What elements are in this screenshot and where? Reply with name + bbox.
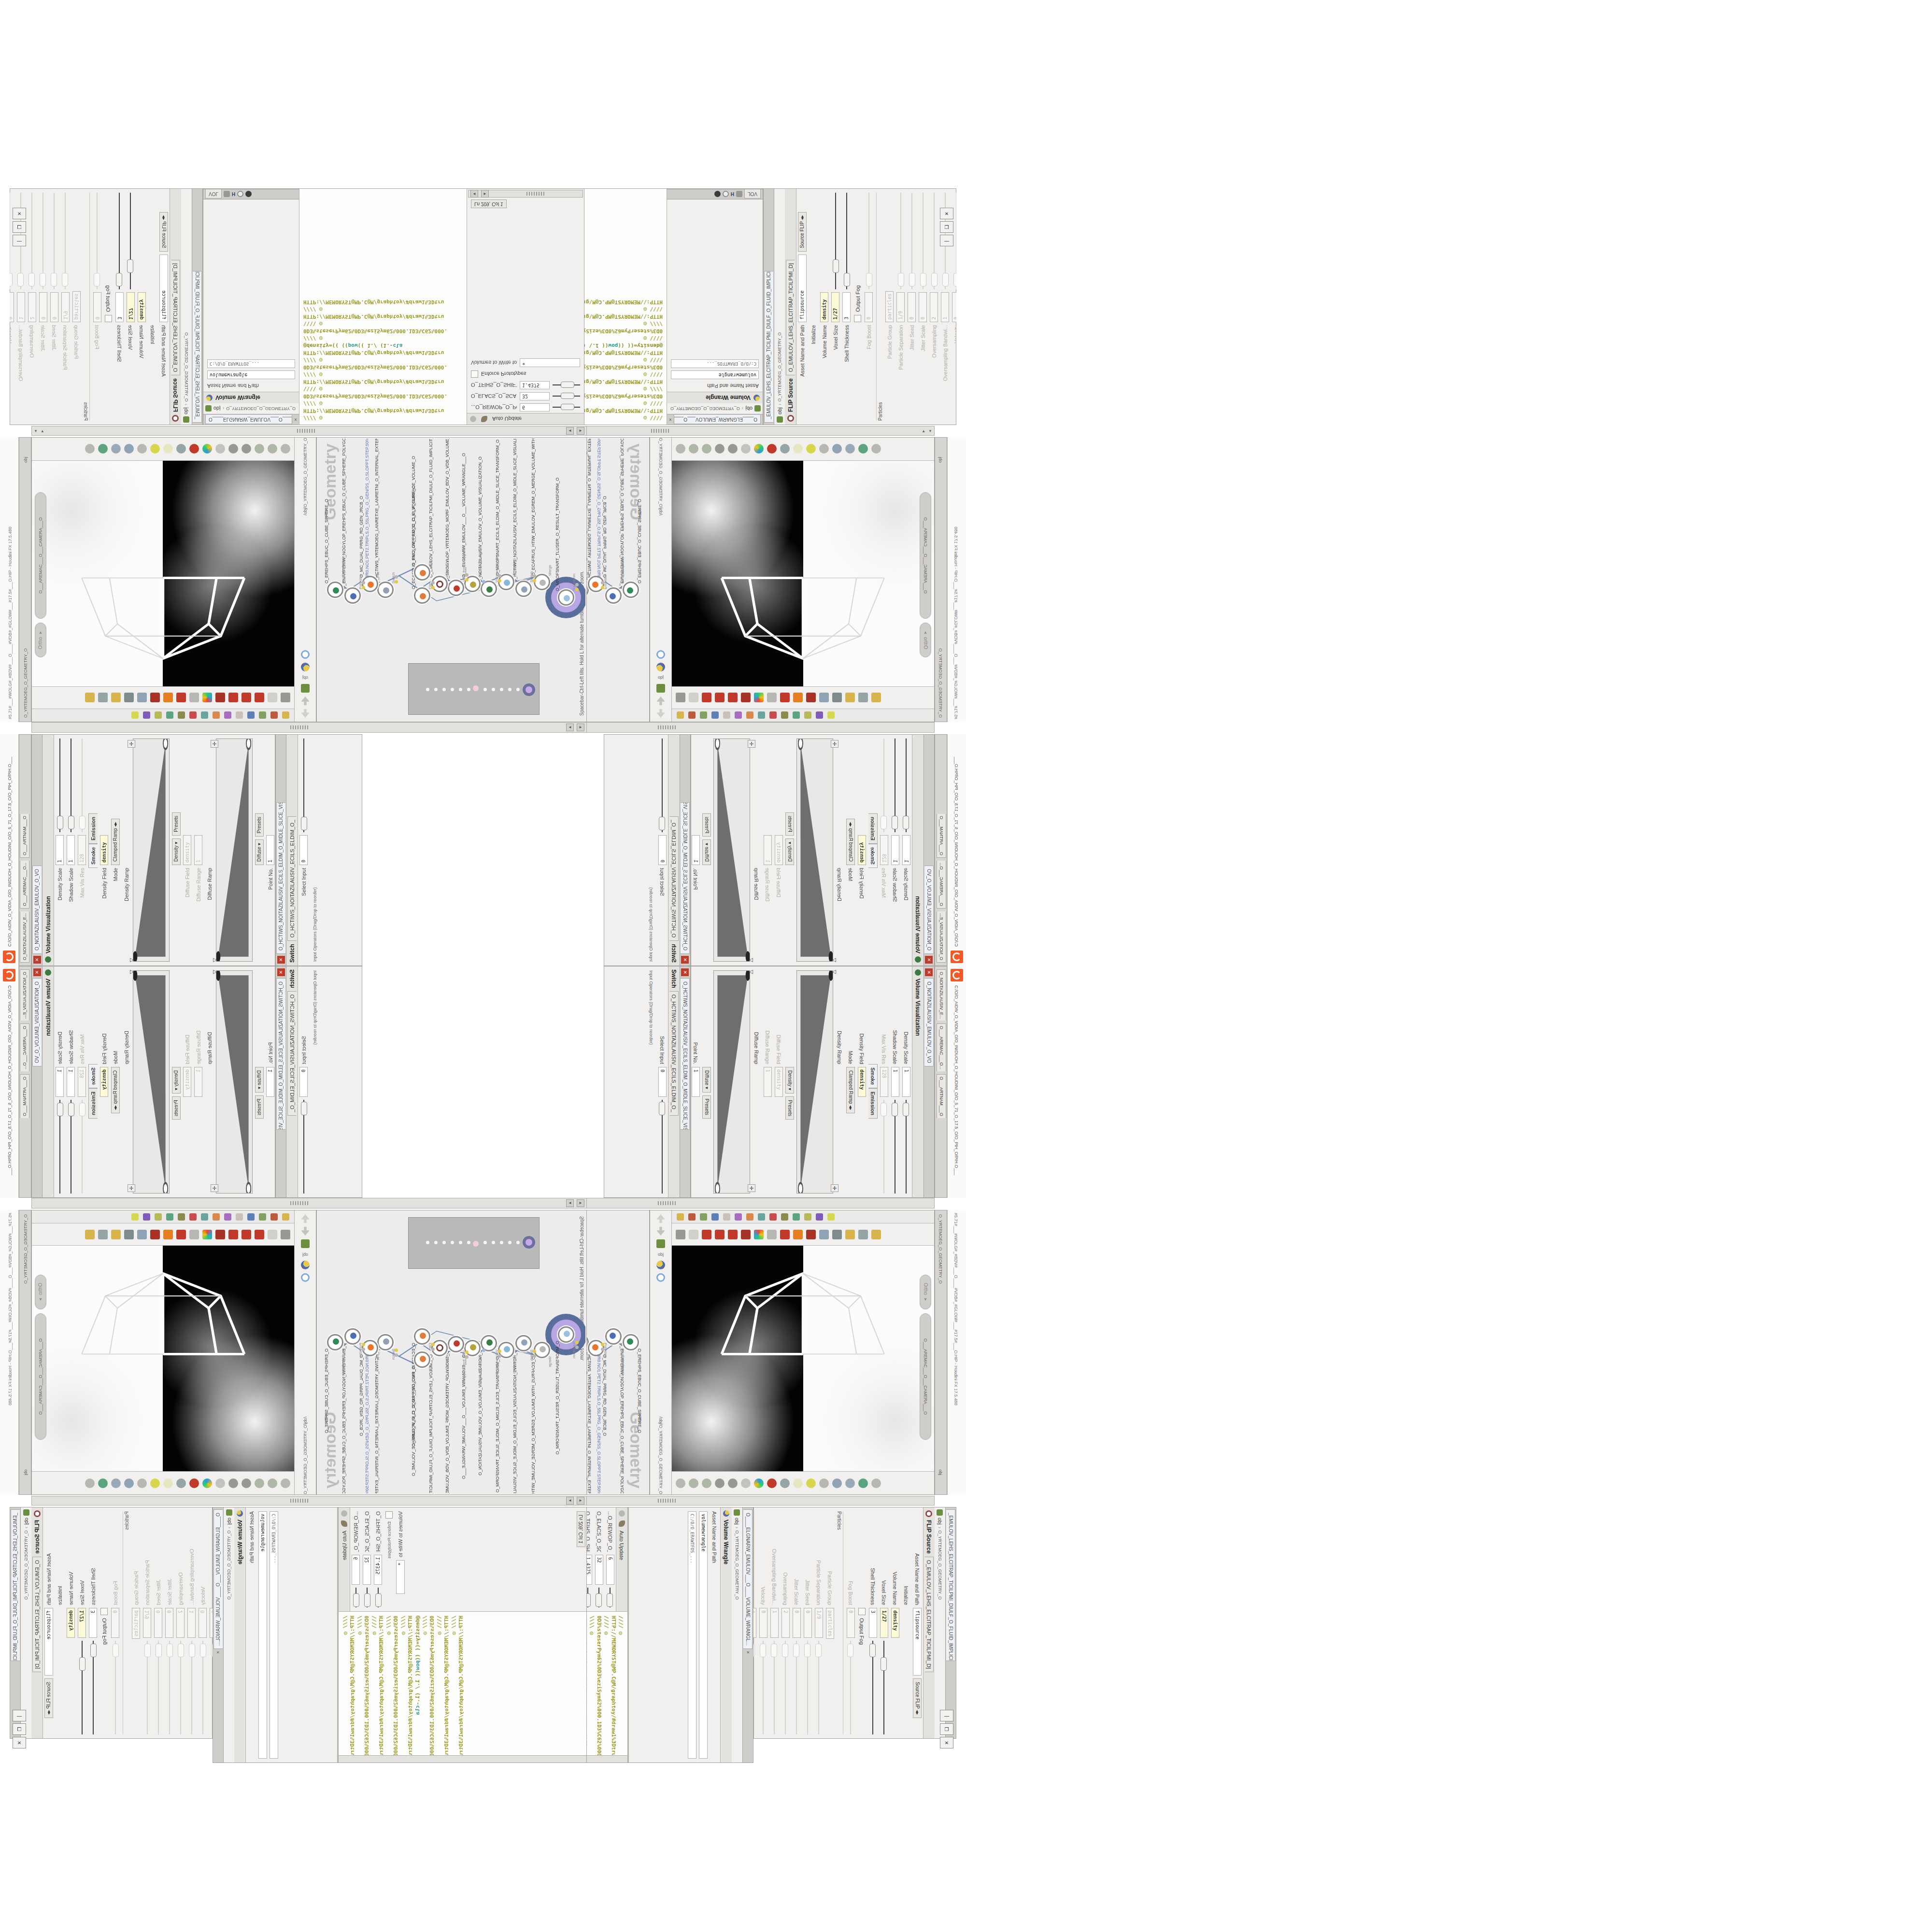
wrangle-slider[interactable]: [363, 1588, 370, 1607]
tab-close-icon[interactable]: ×: [294, 417, 297, 422]
diffuse-range-value[interactable]: 1: [194, 1067, 202, 1097]
diffuse-field-value[interactable]: density: [183, 1067, 191, 1097]
ortho-pill[interactable]: Ortho ▾: [35, 1275, 46, 1309]
maximize-button[interactable]: ❐: [13, 221, 26, 233]
presets-kind-dropdown[interactable]: Diffuse ▾: [255, 839, 264, 865]
presets-button[interactable]: Presets: [255, 1095, 264, 1119]
arrow-left-icon[interactable]: [281, 444, 290, 454]
ramp-add-icon[interactable]: ✛: [128, 1184, 135, 1192]
gear-red-icon[interactable]: [150, 693, 160, 703]
wrangle-slider-value[interactable]: 1.4375: [374, 1555, 382, 1585]
select-input-slider[interactable]: [300, 1100, 307, 1193]
shelf-tool-icon[interactable]: [189, 1213, 197, 1221]
param-value[interactable]: 1/27: [127, 292, 135, 322]
param-slider[interactable]: [112, 1641, 119, 1734]
lamp-yellow-icon[interactable]: [85, 693, 95, 703]
wrangle-slider-value[interactable]: 1.4375: [520, 381, 550, 389]
bucket-yellow-icon[interactable]: [111, 693, 121, 703]
param-slider[interactable]: [210, 1641, 213, 1734]
pane-close-icon[interactable]: ✕: [277, 956, 285, 964]
center-pane-tabs[interactable]: O_NOITAZILAUSIV_E...O___AREMAC___O...O__…: [19, 966, 31, 1198]
ramp-widget[interactable]: ▽✛: [133, 739, 170, 962]
select-input-value[interactable]: 0: [299, 835, 308, 865]
density-field-value[interactable]: density: [100, 835, 108, 865]
param-value[interactable]: 0: [39, 292, 47, 322]
slate-icon[interactable]: [205, 406, 212, 412]
prism-icon[interactable]: [268, 1478, 277, 1488]
scrollbar[interactable]: [526, 192, 546, 196]
close-button[interactable]: ✕: [13, 1737, 26, 1748]
param-value[interactable]: 0: [154, 1608, 162, 1638]
shelf-tool-icon[interactable]: [259, 712, 266, 719]
scissors-icon[interactable]: [189, 1230, 199, 1239]
param-value[interactable]: 2: [176, 1608, 185, 1638]
flip-asset-field[interactable]: flipsource: [160, 255, 169, 322]
refresh-icon[interactable]: [470, 416, 476, 422]
key-icon[interactable]: [241, 444, 251, 454]
scroll-left-icon[interactable]: ◄: [470, 190, 478, 198]
shelf-tool-icon[interactable]: [178, 1213, 185, 1221]
network-node[interactable]: TransformO_MROFSNART_TLUSER_O_RESULT_TRA…: [558, 589, 574, 606]
capsule-yellow-icon[interactable]: [150, 444, 160, 454]
enforce-prototypes-checkbox[interactable]: [471, 370, 478, 378]
breadcrumb-node[interactable]: O_YRTEMOEG_O_GEOMETRY_O: [24, 1530, 28, 1600]
shelf-tool-icon[interactable]: [213, 712, 220, 719]
param-slider[interactable]: [78, 739, 85, 832]
blue-rings-icon[interactable]: [301, 1273, 310, 1282]
presets-kind-dropdown[interactable]: Density ▾: [172, 838, 181, 865]
shelf-tool-icon[interactable]: [236, 1213, 243, 1221]
cam-red-icon[interactable]: [189, 444, 199, 454]
auto-update-button[interactable]: Auto Update: [341, 1531, 347, 1560]
diffuse-field-value[interactable]: density: [183, 835, 191, 865]
software-path-field[interactable]: C:/O/O_ERAWTFOS_...: [270, 1511, 278, 1759]
tab-flip-long[interactable]: _EMULOV_LEHS_ELCITRAP_TICILPMI_DIULF_O_F…: [193, 271, 202, 423]
shelf-tool-icon[interactable]: [143, 712, 150, 719]
refresh-icon[interactable]: [341, 1510, 347, 1517]
shelf-tools-row[interactable]: [32, 1210, 294, 1223]
wrangle-slider[interactable]: [553, 404, 580, 411]
bucket-yellow-icon[interactable]: [111, 1230, 121, 1239]
param-slider[interactable]: [67, 1100, 74, 1193]
center-pane-tabs[interactable]: O_NOITAZILAUSIV_E...O___AREMAC___O...O__…: [19, 734, 31, 966]
wrangle-slider[interactable]: [374, 1588, 382, 1607]
network-node[interactable]: MergeO_ECAFRUS_HTIW_EMULOV_EGREM_O_MERGE…: [534, 574, 550, 590]
shelf-tool-icon[interactable]: [166, 1213, 173, 1221]
camera-pill[interactable]: O___AREMAC___O___CAMERA___O: [35, 1313, 46, 1440]
viewport-canvas[interactable]: Ortho ▾ O___AREMAC___O___CAMERA___O: [32, 461, 294, 686]
network-node[interactable]: an_CubeSphereO_EREHPS_EBUC_O_CUBE_SPHERE…: [327, 582, 343, 598]
tab-viz[interactable]: O_NOITAZILAUSIV_EMULOV_O_VO: [32, 866, 42, 954]
shelf-tool-icon[interactable]: [131, 1213, 139, 1221]
param-value[interactable]: 0: [111, 1608, 119, 1638]
network-editor-pane[interactable]: Spacebar-Ctrl-Left tilts. Hold L for alt…: [316, 437, 587, 722]
center-tab[interactable]: O___ARTNAM___O: [20, 1074, 29, 1118]
close-button[interactable]: ✕: [13, 208, 26, 219]
render-box-icon[interactable]: [111, 444, 121, 454]
cursor-arrow-icon[interactable]: [124, 1230, 134, 1239]
prism-icon[interactable]: [255, 1478, 264, 1488]
network-node[interactable]: SwitchO_HCTIWS_NOITAZILAUSIV_ECILS_ELDIM…: [515, 581, 532, 597]
shelf-tool-icon[interactable]: [201, 712, 208, 719]
prism-icon[interactable]: [268, 444, 277, 454]
minimize-button[interactable]: —: [13, 235, 26, 246]
center-pane-tabs[interactable]: O_YRTEMOEG_O_GEOMETRY_O obj: [19, 437, 31, 722]
param-value[interactable]: 0: [210, 1608, 213, 1638]
plane-red-icon[interactable]: [176, 1230, 186, 1239]
presets-button[interactable]: Presets: [172, 812, 181, 836]
param-slider[interactable]: [143, 1641, 151, 1734]
shelf-tool-icon[interactable]: [155, 712, 162, 719]
node-link-label[interactable]: JR0.NO1.PET2.TRIPLS.O_55LPRG_O_GEN/SS_O.…: [365, 1354, 369, 1493]
source-flip-dropdown[interactable]: Source FLIP ◂▸: [44, 1678, 53, 1718]
scene-viewport-pane[interactable]: obj /obj/O_YRTEMOEG_O_GEOMETRY_O: [31, 437, 316, 722]
pane-close-icon[interactable]: ✕: [33, 956, 41, 964]
auto-update-button[interactable]: Auto Update: [492, 416, 522, 422]
minimize-button[interactable]: —: [13, 1710, 26, 1721]
pen-icon[interactable]: [481, 416, 487, 422]
mode-dropdown[interactable]: Clamped Ramp ◂▸: [111, 819, 120, 865]
cam-box-icon[interactable]: [176, 444, 186, 454]
shelf-tool-icon[interactable]: [270, 1213, 278, 1221]
magnet-red-icon[interactable]: [255, 1230, 264, 1239]
param-value[interactable]: 2: [28, 292, 36, 322]
node-link-label[interactable]: JR0.NO1.PET2.TRIPLS.O_55LPRG_O_GEN/SS_O.…: [365, 439, 369, 578]
info-icon[interactable]: [245, 191, 252, 198]
viewport-top-toolbar[interactable]: [32, 1223, 294, 1246]
slate-icon[interactable]: [226, 1509, 232, 1516]
cursor-arrow-icon[interactable]: [124, 693, 134, 703]
diamond-checker-icon[interactable]: [98, 1230, 108, 1239]
param-slider[interactable]: [40, 193, 47, 289]
vex-code-editor[interactable]: //// ◎ HTTP://MEMORYST@MP.C@M/graphtoy/#…: [299, 189, 467, 425]
param-value[interactable]: 1: [56, 1067, 64, 1097]
shelf-tool-icon[interactable]: [236, 712, 243, 719]
pane-divider-strip[interactable]: ◄►: [31, 722, 587, 733]
target-icon[interactable]: [163, 444, 173, 454]
diffuse-range-value[interactable]: 1: [194, 835, 202, 865]
diamond-gray-icon[interactable]: [85, 1478, 95, 1488]
param-value[interactable]: 3: [115, 292, 124, 322]
tab-volume-wrangle[interactable]: O____ELGNARW_EMULOV___O____VOLUME_WRANGL…: [205, 415, 292, 424]
star-colors-icon[interactable]: [202, 693, 212, 703]
param-slider[interactable]: [28, 193, 36, 289]
param-slider[interactable]: [155, 1641, 162, 1734]
lens-icon[interactable]: [137, 444, 147, 454]
shelf-tool-icon[interactable]: [178, 712, 185, 719]
film-loop-icon[interactable]: [281, 693, 290, 703]
network-node[interactable]: TransformO_MROFSNART_TLUSER_O_RESULT_TRA…: [558, 1326, 574, 1343]
ramp-widget[interactable]: ▽✛: [216, 970, 253, 1193]
view-box-icon[interactable]: [268, 693, 277, 703]
network-editor-pane[interactable]: Spacebar-Ctrl-Left tilts. Hold L for alt…: [316, 1210, 587, 1495]
shelf-tool-icon[interactable]: [201, 1213, 208, 1221]
magnet-red-icon[interactable]: [228, 1230, 238, 1239]
shelf-tool-icon[interactable]: [143, 1213, 150, 1221]
network-node[interactable]: PolyWireO_ENARFERIW_NOGYLOP_EREHPS_EBUC_…: [344, 587, 361, 604]
pen-icon[interactable]: [341, 1520, 347, 1527]
lamp-yellow-icon[interactable]: [85, 1230, 95, 1239]
param-value[interactable]: 1: [187, 1608, 196, 1638]
scrollbar[interactable]: [339, 1755, 586, 1762]
network-node[interactable]: ClipO_EMULOV_PILC_O_CLIP_VOLUME_O: [414, 564, 430, 581]
magnet-red-icon[interactable]: [241, 693, 251, 703]
cam-red-icon[interactable]: [189, 1478, 199, 1488]
gear-icon[interactable]: [224, 191, 230, 198]
param-value[interactable]: particles: [132, 1608, 140, 1639]
param-value[interactable]: 1: [67, 835, 75, 865]
ortho-pill[interactable]: Ortho ▾: [35, 623, 46, 657]
network-node[interactable]: SwitchO_HCTIWS_YRTEMOEG_LANRETXE_LANRETN…: [377, 1334, 394, 1350]
camera-pill[interactable]: O___AREMAC___O___CAMERA___O: [35, 492, 46, 619]
shelf-tool-icon[interactable]: [224, 1213, 231, 1221]
network-node[interactable]: ClipO_ECAFRUS_PILC_GRP_PMOC_O_CLIP_SURFA…: [414, 587, 430, 604]
home-up-icon[interactable]: [301, 709, 310, 718]
build-green-icon[interactable]: [98, 1478, 108, 1488]
shelf-tools-row[interactable]: [32, 709, 294, 722]
network-node[interactable]: MergeO_ECAFRUS_HTIW_EMULOV_EGREM_O_MERGE…: [534, 1342, 550, 1358]
arrow-left-icon[interactable]: [281, 1478, 290, 1488]
wrangle-name-field[interactable]: volumewrangle: [258, 1511, 267, 1759]
switch-node-tab[interactable]: O_HCTIWS_NOITAZILAUSIV_ECILS_ELDIM_O_: [287, 816, 297, 941]
wrangle-slider-value[interactable]: 6: [352, 1555, 360, 1585]
param-slider[interactable]: [116, 193, 123, 289]
param-value[interactable]: 1: [266, 835, 274, 865]
network-node[interactable]: VDB from PolygonsO_SNOGYLOP_YRTEMOEG_MOR…: [448, 1336, 464, 1352]
network-node[interactable]: SwitchO_HCTIWS_NOITAZILAUSIV_ECILS_ELDIM…: [515, 1335, 532, 1351]
enforce-prototypes-checkbox[interactable]: [385, 1511, 393, 1519]
ramp-widget[interactable]: ▽✛: [133, 970, 170, 1193]
param-slider[interactable]: [78, 1641, 85, 1734]
slate-icon[interactable]: [301, 1239, 310, 1248]
network-node[interactable]: VDB from PolygonsO_SNOGYLOP_YRTEMOEG_MOR…: [448, 580, 464, 596]
cam-box-icon[interactable]: [176, 1478, 186, 1488]
param-slider[interactable]: [166, 1641, 173, 1734]
obj-breadcrumb[interactable]: obj: [302, 1252, 308, 1257]
arrow-down-icon[interactable]: [301, 696, 310, 705]
param-value[interactable]: 0: [165, 1608, 173, 1638]
shelf-tool-icon[interactable]: [189, 712, 197, 719]
wrangle-slider-value[interactable]: 32: [520, 392, 550, 400]
ramp-add-icon[interactable]: ✛: [128, 740, 135, 748]
prism-icon[interactable]: [255, 444, 264, 454]
shelf-tool-icon[interactable]: [155, 1213, 162, 1221]
slate-icon[interactable]: [23, 1509, 29, 1516]
pane-divider-strip[interactable]: ◄►: [31, 1496, 587, 1506]
key-icon[interactable]: [241, 1478, 251, 1488]
mode-dropdown[interactable]: Clamped Ramp ◂▸: [111, 1067, 120, 1113]
ramp-add-icon[interactable]: ✛: [211, 740, 218, 748]
software-path-field[interactable]: C:/O/O_ERAWTFOS_...: [207, 360, 295, 369]
wrangle-slider[interactable]: [553, 382, 580, 389]
wrangle-slider[interactable]: [352, 1588, 359, 1607]
param-value[interactable]: 128: [78, 1067, 86, 1097]
breadcrumb-node[interactable]: O_YRTEMOEG_O_GEOMETRY_O: [227, 1530, 231, 1600]
param-slider[interactable]: [199, 1641, 206, 1734]
param-slider[interactable]: [188, 1641, 195, 1734]
render-box-icon[interactable]: [111, 1478, 121, 1488]
param-value[interactable]: 128: [78, 835, 86, 865]
param-value[interactable]: density: [67, 1608, 75, 1638]
pane-divider-strip[interactable]: ◄►: [31, 1198, 587, 1208]
tab-smoke[interactable]: Smoke: [88, 1064, 98, 1088]
center-tab[interactable]: O___AREMAC___O...: [20, 1023, 29, 1071]
param-slider[interactable]: [177, 1641, 184, 1734]
param-value[interactable]: 1: [266, 1067, 274, 1097]
ramp-widget[interactable]: ▽✛: [216, 739, 253, 962]
param-value[interactable]: density: [138, 292, 146, 322]
network-node[interactable]: ClipO_ECAFRUS_PILC_GRP_PMOC_O_CLIP_SURFA…: [414, 1328, 430, 1345]
arrow-down-icon[interactable]: [301, 1227, 310, 1236]
scene-viewport-pane[interactable]: obj /obj/O_YRTEMOEG_O_GEOMETRY_O: [31, 1210, 316, 1495]
shelf-tool-icon[interactable]: [282, 1213, 289, 1221]
network-node[interactable]: SwitchO_HCTIWS_YRTEMOEG_LANRETXE_LANRETN…: [377, 582, 394, 598]
param-slider[interactable]: [89, 1641, 97, 1734]
ramp-add-icon[interactable]: ✛: [211, 1184, 218, 1192]
breadcrumb-node[interactable]: O_YRTEMOEG_O_GEOMETRY_O: [226, 406, 296, 411]
toggle-2d-icon[interactable]: [137, 693, 147, 703]
breadcrumb[interactable]: obj: [213, 406, 221, 412]
vex-code-editor[interactable]: //// ◎ HTTP://MEMORYST@MP.C@M/graphtoy/#…: [339, 1612, 586, 1755]
tab-vol[interactable]: VOL: [205, 190, 222, 199]
param-slider[interactable]: [56, 1100, 63, 1193]
swirl-orange-icon[interactable]: [163, 693, 173, 703]
select-input-value[interactable]: 0: [299, 1067, 308, 1097]
gear-red-icon[interactable]: [150, 1230, 160, 1239]
pane-close-icon[interactable]: ✕: [33, 968, 41, 976]
source-flip-dropdown[interactable]: Source FLIP ◂▸: [160, 212, 169, 252]
shelf-tool-icon[interactable]: [166, 712, 173, 719]
tab-volume-wrangle[interactable]: O____ELGNARW_EMULOV___O____VOLUME_WRANGL…: [213, 1509, 223, 1649]
star-colors-icon[interactable]: [202, 1230, 212, 1239]
viewport-bottom-toolbar[interactable]: [32, 438, 294, 461]
breadcrumb-node[interactable]: O_YRTEMOEG_O_GEOMETRY_O: [184, 332, 189, 402]
wrangle-slider[interactable]: [553, 393, 580, 400]
param-value[interactable]: 1: [17, 292, 25, 322]
param-value[interactable]: 1: [56, 835, 64, 865]
magnet-red-icon[interactable]: [255, 693, 264, 703]
breadcrumb[interactable]: obj: [23, 1518, 29, 1525]
wrangle-slider-value[interactable]: 6: [520, 403, 550, 412]
wrangle-name-field[interactable]: volumewrangle: [207, 371, 295, 380]
shelf-tool-icon[interactable]: [224, 712, 231, 719]
tab-emission[interactable]: Emission: [88, 1088, 98, 1119]
param-value[interactable]: particles: [72, 291, 81, 322]
capsule-yellow-icon[interactable]: [150, 1478, 160, 1488]
key-icon[interactable]: [228, 444, 238, 454]
tab-vol[interactable]: VOL: [338, 1509, 339, 1526]
presets-kind-dropdown[interactable]: Density ▾: [172, 1067, 181, 1094]
view-box-icon[interactable]: [268, 1230, 277, 1239]
scroll-right-icon[interactable]: ►: [481, 190, 489, 198]
param-slider[interactable]: [67, 739, 74, 832]
volumes-write-field[interactable]: *: [396, 1560, 405, 1594]
switch-node-tab[interactable]: O_HCTIWS_NOITAZILAUSIV_ECILS_ELDIM_O_: [287, 991, 297, 1116]
ring-icon[interactable]: [215, 1478, 225, 1488]
wrangle-slider-value[interactable]: 32: [363, 1555, 371, 1585]
breadcrumb[interactable]: obj: [184, 407, 189, 414]
plane-red-icon[interactable]: [176, 693, 186, 703]
output-fog-checkbox[interactable]: [100, 1608, 108, 1615]
diamond-gray-icon[interactable]: [85, 444, 95, 454]
tab-smoke[interactable]: Smoke: [88, 844, 98, 868]
home-up-icon[interactable]: [301, 1214, 310, 1223]
viewport-bottom-toolbar[interactable]: [32, 1471, 294, 1494]
pane-close-icon[interactable]: ✕: [277, 968, 285, 976]
param-value[interactable]: 1/27: [78, 1608, 86, 1638]
maximize-button[interactable]: ❐: [13, 1723, 26, 1735]
breadcrumb[interactable]: obj: [226, 1518, 232, 1525]
param-slider[interactable]: [56, 739, 63, 832]
target-icon[interactable]: [163, 1478, 173, 1488]
param-value[interactable]: 0: [93, 292, 101, 322]
shelf-tool-icon[interactable]: [270, 712, 278, 719]
param-slider[interactable]: [51, 193, 58, 289]
tab-close-icon[interactable]: ×: [215, 1651, 221, 1654]
presets-button[interactable]: Presets: [172, 1096, 181, 1120]
param-value[interactable]: 0: [10, 292, 14, 322]
center-tab[interactable]: O_NOITAZILAUSIV_E...: [20, 911, 29, 963]
tab-flip[interactable]: O_EMULOV_LEHS_ELCITRAP_TICILPMI_D]: [171, 260, 180, 376]
tab-emission[interactable]: Emission: [88, 813, 98, 844]
slate-icon[interactable]: [301, 684, 310, 693]
param-value[interactable]: 0: [199, 1608, 207, 1638]
param-value[interactable]: 1/9: [61, 292, 70, 322]
cam-colorful-icon[interactable]: [202, 1478, 212, 1488]
param-value[interactable]: 3: [89, 1608, 97, 1638]
center-tab[interactable]: O___AREMAC___O...: [20, 861, 29, 909]
output-fog-checkbox[interactable]: [105, 315, 112, 322]
param-slider[interactable]: [78, 1100, 85, 1193]
presets-kind-dropdown[interactable]: Diffuse ▾: [255, 1067, 264, 1093]
viewport-canvas[interactable]: Ortho ▾ O___AREMAC___O___CAMERA___O: [32, 1246, 294, 1471]
flip-asset-field[interactable]: flipsource: [44, 1608, 53, 1676]
network-node[interactable]: an_CubeSphereO_EREHPS_EBUC_O_CUBE_SPHERE…: [327, 1334, 343, 1350]
lens-icon[interactable]: [137, 1478, 147, 1488]
cam-colorful-icon[interactable]: [202, 444, 212, 454]
blue-rings-icon[interactable]: [301, 650, 310, 659]
pane-divider-strip[interactable]: ◄►▲▼: [31, 426, 587, 436]
tab-switch[interactable]: O_HCTIWS_NOITAZILAUSIV_ECILS_ELDIM_O_MID…: [276, 978, 285, 1130]
magnet-frame-icon[interactable]: [215, 693, 225, 703]
toggle-2d-icon[interactable]: [137, 1230, 147, 1239]
viewport-top-toolbar[interactable]: [32, 686, 294, 709]
center-tab[interactable]: O_NOITAZILAUSIV_E...: [20, 969, 29, 1021]
magnifier-icon[interactable]: [237, 191, 243, 198]
volumes-write-field[interactable]: *: [520, 359, 580, 368]
shelf-tool-icon[interactable]: [131, 712, 139, 719]
center-pane-tabs[interactable]: O_YRTEMOEG_O_GEOMETRY_O obj: [19, 1210, 31, 1495]
density-field-value[interactable]: density: [100, 1067, 108, 1097]
obj-breadcrumb[interactable]: obj: [302, 675, 308, 680]
param-value[interactable]: 0: [50, 292, 58, 322]
presets-button[interactable]: Presets: [255, 813, 264, 837]
center-tab[interactable]: O___ARTNAM___O: [20, 814, 29, 858]
tab-flip[interactable]: O_EMULOV_LEHS_ELCITRAP_TICILPMI_D]: [32, 1557, 42, 1673]
eye-icon[interactable]: [124, 1478, 134, 1488]
tab-flip-long[interactable]: _EMULOV_LEHS_ELCITRAP_TICILPMI_DIULF_O_F…: [11, 1509, 20, 1661]
network-node[interactable]: PolyWireO_ENARFERIW_NOGYLOP_EREHPS_EBUC_…: [344, 1328, 361, 1345]
magnet-frame-icon[interactable]: [215, 1230, 225, 1239]
ring-icon[interactable]: [215, 444, 225, 454]
shelf-tool-icon[interactable]: [247, 712, 255, 719]
shelf-tool-icon[interactable]: [213, 1213, 220, 1221]
shelf-tool-icon[interactable]: [259, 1213, 266, 1221]
param-value[interactable]: 1/9: [143, 1608, 151, 1638]
network-node[interactable]: ClipO_EMULOV_PILC_O_CLIP_VOLUME_O: [414, 1351, 430, 1368]
eye-icon[interactable]: [124, 444, 134, 454]
magnet-red-icon[interactable]: [228, 693, 238, 703]
